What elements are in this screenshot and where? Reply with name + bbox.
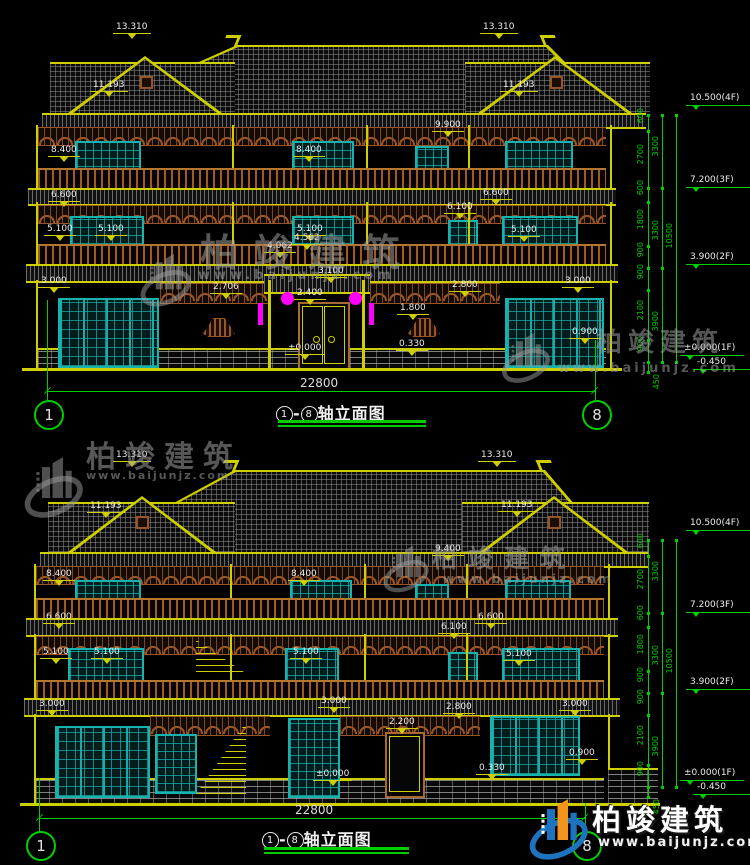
axis-dropline — [39, 778, 40, 832]
gable-ornament — [548, 516, 561, 529]
level-annotation: 11.193 — [90, 80, 128, 92]
level-annotation: 13.310 — [113, 22, 151, 34]
lantern-tassel — [258, 303, 263, 325]
level-annotation: 2.200 — [386, 717, 418, 729]
level-annotation: 3.000 — [559, 699, 591, 711]
level-annotation: 6.600 — [48, 190, 80, 202]
level-annotation: 0.330 — [396, 339, 428, 351]
level-annotation: 8.400 — [43, 569, 75, 581]
axis-bubble-8: 8 — [582, 400, 612, 430]
watermark-logo-icon — [497, 328, 557, 384]
level-annotation: 5.100 — [44, 224, 76, 236]
level-annotation: 6.600 — [480, 188, 512, 200]
company-logo-url: www.baijunjz.com — [598, 835, 750, 850]
axis-number: 1 — [44, 406, 54, 424]
level-annotation: 11.193 — [498, 500, 536, 512]
watermark-name: 柏竣建筑 — [432, 539, 576, 575]
level-annotation: 9.900 — [432, 120, 464, 132]
level-annotation: 3.000 — [562, 276, 594, 288]
level-annotation: 11.193 — [87, 501, 125, 513]
level-annotation: 3.000 — [38, 276, 70, 288]
level-annotation: 2.800 — [449, 280, 481, 292]
level-annotation: 5.100 — [91, 647, 123, 659]
level-annotation: 6.100 — [444, 202, 476, 214]
level-annotation: 11.193 — [500, 80, 538, 92]
level-annotation: 5.100 — [290, 647, 322, 659]
watermark-url: www.baijunjz.com — [198, 268, 395, 283]
level-annotation: 3.000 — [318, 696, 350, 708]
company-logo-icon — [524, 793, 596, 861]
rear-door — [385, 732, 425, 798]
title-underline — [278, 420, 426, 423]
title-underline — [278, 425, 426, 427]
level-annotation: 3.000 — [36, 699, 68, 711]
level-annotation: 8.400 — [293, 145, 325, 157]
width-label: 22800 — [295, 803, 333, 817]
watermark-logo-icon — [24, 430, 86, 540]
company-logo-name: 柏竣建筑 — [592, 797, 728, 839]
title-underline — [264, 847, 409, 850]
level-annotation: 5.100 — [508, 225, 540, 237]
axis-number: 8 — [592, 406, 602, 424]
width-dimension-line — [39, 818, 585, 819]
fretwork-frieze — [150, 716, 270, 736]
level-annotation: 0.900 — [566, 748, 598, 760]
level-annotation: 1.800 — [397, 303, 429, 315]
width-label: 22800 — [300, 376, 338, 390]
door-knob — [328, 336, 335, 343]
large-lattice-window — [55, 726, 150, 798]
level-annotation: 13.310 — [478, 450, 516, 462]
gable-ornament — [136, 516, 149, 529]
level-annotation: 0.330 — [476, 763, 508, 775]
level-annotation: 6.600 — [475, 612, 507, 624]
lantern-tassel — [369, 303, 374, 325]
title-underline — [264, 852, 409, 854]
watermark-logo-icon — [383, 538, 431, 596]
entrance-post — [362, 280, 365, 368]
axis-dropline — [47, 300, 48, 400]
axis-bubble-1: 1 — [26, 831, 56, 861]
cad-canvas: { "labels": { "13310":"13.310","11193":"… — [0, 0, 750, 865]
entrance-post — [268, 280, 271, 368]
level-annotation: 6.600 — [43, 612, 75, 624]
level-annotation: ±0.000 — [285, 343, 324, 355]
lattice-window — [155, 734, 197, 794]
width-dimension-line — [47, 391, 595, 392]
gable-ornament — [140, 76, 153, 89]
level-annotation: 2.400 — [294, 288, 326, 300]
level-annotation: 5.100 — [503, 649, 535, 661]
door-leaf — [324, 306, 345, 364]
level-annotation: 8.400 — [288, 569, 320, 581]
level-annotation: 8.400 — [48, 145, 80, 157]
level-annotation: 2.800 — [443, 702, 475, 714]
watermark-name: 柏竣建筑 — [596, 322, 724, 359]
level-annotation: 5.100 — [95, 224, 127, 236]
level-annotation: 6.100 — [438, 622, 470, 634]
axis-number: 1 — [36, 837, 46, 855]
watermark-url: www.baijunjz.com — [86, 469, 230, 482]
lantern — [349, 292, 362, 305]
watermark-url: www.baijunjz.com — [443, 572, 614, 586]
watermark-logo-icon — [140, 228, 194, 328]
level-annotation: 5.100 — [40, 647, 72, 659]
door-knob — [313, 336, 320, 343]
axis-bubble-1: 1 — [34, 400, 64, 430]
gable-ornament — [550, 76, 563, 89]
door-leaf — [389, 736, 420, 792]
level-annotation: 2.706 — [210, 282, 242, 294]
level-annotation: 13.310 — [480, 22, 518, 34]
watermark-url: www.baijunjz.com — [558, 361, 739, 376]
level-annotation: ±0.000 — [313, 769, 352, 781]
lantern — [281, 292, 294, 305]
